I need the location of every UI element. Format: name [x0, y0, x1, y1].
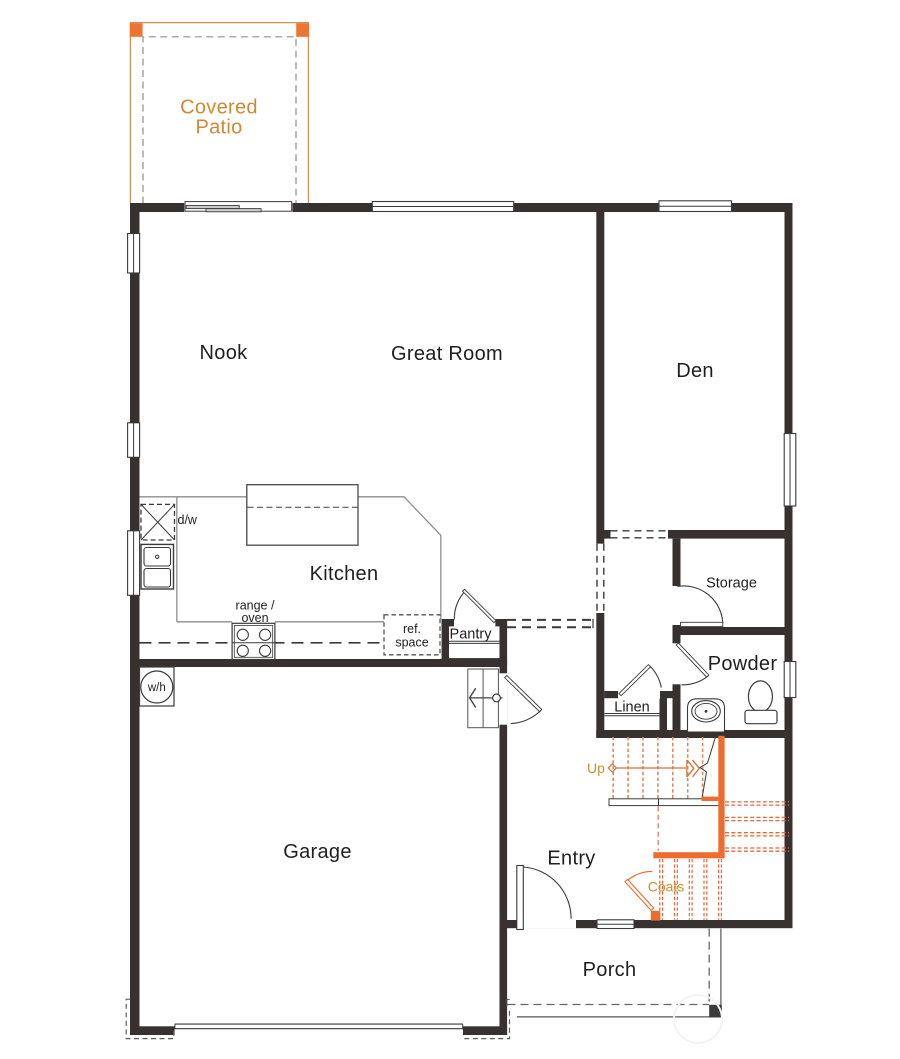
- svg-text:space: space: [395, 636, 428, 650]
- svg-text:Nook: Nook: [200, 342, 249, 364]
- svg-text:w/h: w/h: [147, 682, 166, 694]
- svg-text:Great Room: Great Room: [391, 343, 503, 365]
- svg-text:Covered: Covered: [180, 97, 258, 119]
- svg-text:oven: oven: [241, 611, 268, 625]
- svg-text:Storage: Storage: [706, 576, 757, 592]
- svg-text:Porch: Porch: [583, 959, 637, 981]
- svg-text:Garage: Garage: [283, 841, 352, 863]
- svg-text:Powder: Powder: [708, 653, 778, 675]
- svg-text:Den: Den: [676, 360, 714, 382]
- svg-text:Patio: Patio: [195, 117, 242, 139]
- svg-text:Linen: Linen: [614, 700, 649, 716]
- svg-text:Coats: Coats: [648, 879, 685, 895]
- svg-text:d/w: d/w: [178, 513, 198, 527]
- svg-text:Pantry: Pantry: [450, 627, 493, 643]
- svg-text:ref.: ref.: [403, 622, 421, 636]
- svg-text:Up: Up: [587, 760, 605, 776]
- svg-text:Entry: Entry: [547, 848, 595, 870]
- svg-text:Kitchen: Kitchen: [310, 563, 379, 585]
